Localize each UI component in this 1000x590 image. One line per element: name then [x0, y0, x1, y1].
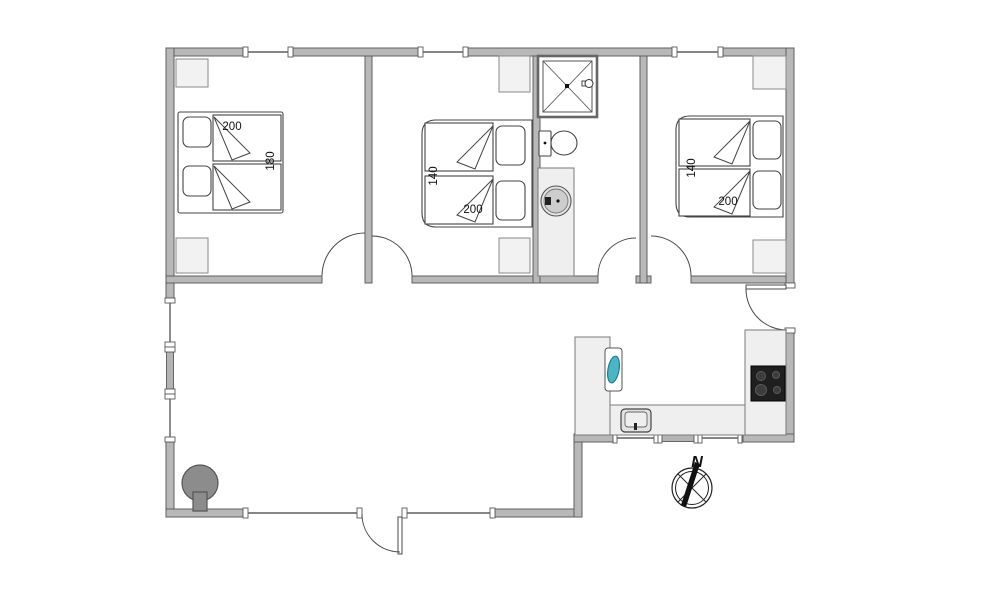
entrance-door [362, 514, 402, 554]
bedroom-3-door-arc [651, 236, 691, 276]
wardrobe [753, 240, 786, 273]
burner [774, 387, 781, 394]
bathroom-vanity [538, 168, 574, 276]
cooktop [751, 366, 785, 401]
faucet-icon [545, 197, 551, 205]
wood-stove [182, 465, 218, 511]
shower-head-icon [585, 80, 593, 88]
compass: N [672, 454, 712, 508]
pillow [753, 171, 781, 209]
bedroom-3-bed: 140 200 [676, 116, 783, 217]
side-door [746, 285, 787, 330]
pillow [753, 121, 781, 159]
floor-plan: 200 180 140 200 140 200 [0, 0, 1000, 590]
burner [756, 385, 767, 396]
bed-width-label: 140 [686, 158, 698, 177]
bedroom-2-door-arc [372, 236, 412, 276]
pillow [496, 126, 525, 165]
bedroom-1-door-arc [322, 233, 365, 276]
kitchen [575, 330, 786, 435]
floor-plan-canvas: 200 180 140 200 140 200 [0, 0, 1000, 590]
toilet [539, 131, 577, 156]
bedroom-2-bed: 140 200 [422, 120, 532, 227]
wardrobe [176, 238, 208, 273]
bed-width-label: 140 [428, 166, 440, 185]
pillow [183, 117, 211, 147]
faucet-icon [634, 423, 637, 430]
bed-length-label: 200 [463, 204, 482, 216]
bathroom-door-arc [598, 238, 636, 276]
burner [757, 372, 766, 381]
shower [538, 56, 597, 117]
wardrobe [499, 238, 530, 273]
wardrobe [176, 59, 208, 87]
pillow [183, 166, 211, 196]
bathroom-fixtures [538, 56, 597, 276]
bed-width-label: 180 [265, 151, 277, 170]
bed-length-label: 200 [718, 196, 737, 208]
pillow [496, 181, 525, 220]
north-label: N [691, 454, 703, 471]
burner [773, 372, 780, 379]
bedroom-1-bed: 200 180 [178, 112, 283, 213]
kitchen-sink [621, 409, 651, 432]
bed-length-label: 200 [222, 121, 241, 133]
wardrobe [753, 56, 786, 89]
wardrobe [499, 56, 530, 92]
island-basin [605, 348, 622, 391]
